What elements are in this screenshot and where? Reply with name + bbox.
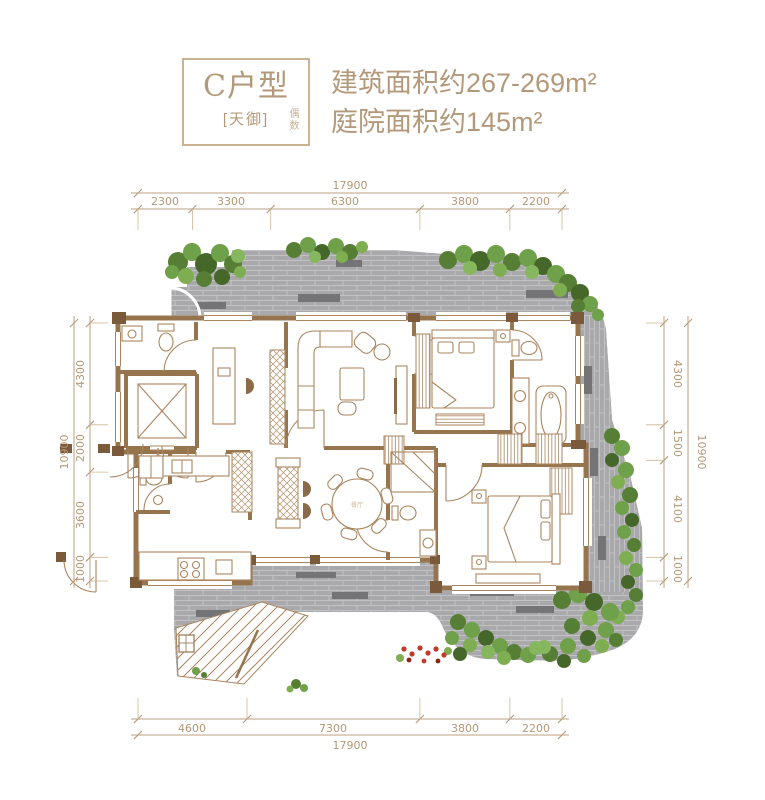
dim-left-seg-1: 2000 xyxy=(74,434,87,462)
dim-top-total: 17900 xyxy=(333,179,368,192)
dim-right-seg-0: 4300 xyxy=(671,360,684,388)
side-table xyxy=(374,344,390,360)
vanity xyxy=(420,530,436,556)
dim-top-seg-2: 6300 xyxy=(331,195,359,208)
ottoman xyxy=(338,402,356,415)
wardrobe xyxy=(416,334,430,408)
toilet xyxy=(400,506,416,520)
planter-box xyxy=(179,635,194,652)
dim-bottom-seg-0: 4600 xyxy=(178,722,206,735)
dim-top-seg-1: 3300 xyxy=(217,195,245,208)
dim-top-seg-4: 2200 xyxy=(522,195,550,208)
coffee-table xyxy=(340,368,364,400)
dim-bottom-total: 17900 xyxy=(333,739,368,752)
dim-right-seg-3: 1000 xyxy=(671,555,684,583)
dim-top: 17900 2300 3300 6300 3800 2200 xyxy=(131,179,569,230)
dim-left-seg-0: 4300 xyxy=(74,360,87,388)
dim-bottom-seg-3: 2200 xyxy=(522,722,550,735)
low-cabinet xyxy=(476,574,540,583)
tv-screen xyxy=(394,378,397,414)
dim-left-seg-3: 1000 xyxy=(74,555,87,583)
dim-left-total: 10900 xyxy=(58,435,71,470)
tall-cabinets xyxy=(232,452,252,512)
dim-bottom-seg-2: 3800 xyxy=(451,722,479,735)
floorplan-page: C户型 [天御] 偶数 建筑面积约267-269m² 庭院面积约145m² xyxy=(0,0,765,800)
toilet xyxy=(521,342,537,355)
counter-south xyxy=(139,552,251,580)
floorplan-svg: 餐厅 17900 2300 3300 6300 3800 2200 xyxy=(0,0,765,800)
dim-bottom: 4600 7300 3800 2200 17900 xyxy=(131,698,569,752)
nightstand xyxy=(496,330,510,342)
nightstand xyxy=(472,490,486,503)
nightstand xyxy=(472,556,486,569)
dim-right-seg-1: 1500 xyxy=(671,429,684,457)
dim-right-total: 10900 xyxy=(695,435,708,470)
dim-top-seg-0: 2300 xyxy=(151,195,179,208)
dim-left-seg-2: 3600 xyxy=(74,501,87,529)
dining-label: 餐厅 xyxy=(351,501,363,509)
bookshelf xyxy=(270,350,285,444)
tv-cabinet xyxy=(396,366,407,424)
dim-top-seg-3: 3800 xyxy=(451,195,479,208)
island-counter xyxy=(278,462,298,524)
bench xyxy=(436,414,484,425)
dim-right-seg-2: 4100 xyxy=(671,495,684,523)
dim-bottom-seg-1: 7300 xyxy=(319,722,347,735)
dim-right: 4300 1500 4100 1000 10900 xyxy=(646,316,708,588)
